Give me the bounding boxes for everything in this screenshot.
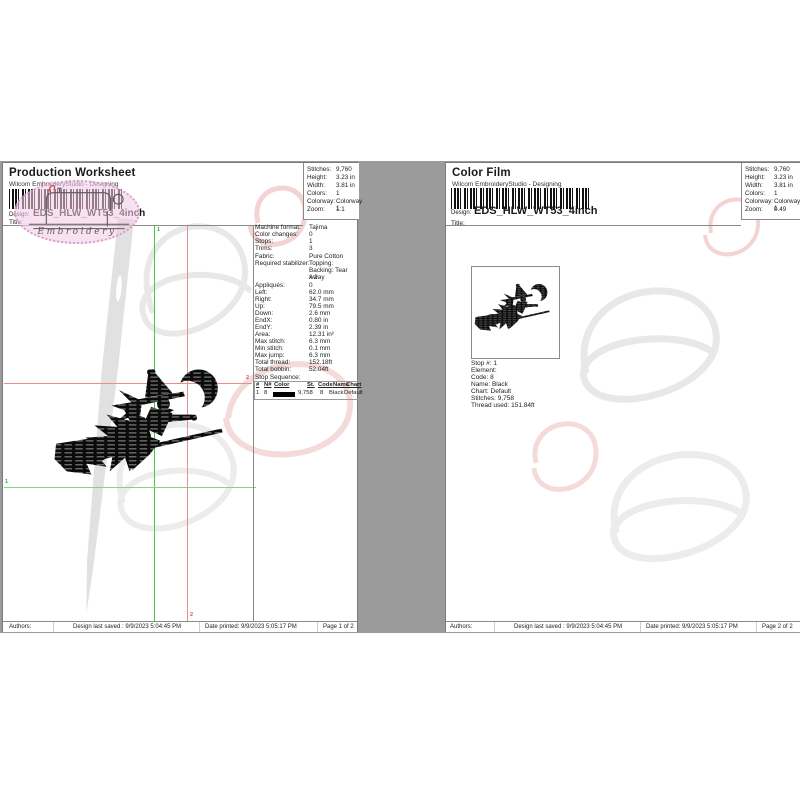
page-title: Color Film xyxy=(452,167,511,179)
detail-value: 1 xyxy=(309,238,313,245)
stat-value: 3.81 in xyxy=(336,182,355,189)
detail-label: Area: xyxy=(255,331,270,338)
footer-saved: Design last saved : 9/9/2023 5:04:45 PM xyxy=(514,624,622,630)
detail-value: 6.3 mm xyxy=(309,352,330,359)
col-header: Color xyxy=(274,382,289,388)
detail-value: 62.0 mm xyxy=(309,289,334,296)
stat-value: 1:1 xyxy=(336,206,345,213)
cell-stitches: 9,758 xyxy=(298,390,313,396)
stop-detail-line: Name: Black xyxy=(471,381,508,388)
footer-saved: Design last saved : 9/9/2023 5:04:45 PM xyxy=(73,624,181,630)
col-header: Chart xyxy=(346,382,361,388)
detail-value: 152.18ft xyxy=(309,359,332,366)
witch-embroidery-design xyxy=(53,367,237,493)
stat-value: 0.49 xyxy=(774,206,786,213)
header-divider xyxy=(446,225,741,226)
app-subtitle: Wilcom EmbroideryStudio - Designing xyxy=(452,181,561,188)
stat-label: Height: xyxy=(745,174,765,181)
detail-value: 2.39 in xyxy=(309,324,328,331)
detail-label: Required stabilizer: xyxy=(255,260,310,267)
detail-label: Up: xyxy=(255,303,265,310)
detail-label: Machine format: xyxy=(255,224,301,231)
detail-value: 0.1 mm xyxy=(309,345,330,352)
stat-label: Colorway: xyxy=(307,198,335,205)
design-name: EDS_HLW_WT53_4inch xyxy=(474,205,597,217)
detail-value: 0 xyxy=(309,231,313,238)
footer-authors: Authors: xyxy=(9,624,31,630)
page-title: Production Worksheet xyxy=(9,167,135,179)
detail-value: 12.31 in² xyxy=(309,331,334,338)
col-header: Code xyxy=(318,382,333,388)
page-footer: Authors: Design last saved : 9/9/2023 5:… xyxy=(3,621,357,632)
stat-label: Width: xyxy=(307,182,325,189)
detail-value: 0.80 in xyxy=(309,317,328,324)
stop-detail-line: Chart: Default xyxy=(471,388,511,395)
stat-label: Stitches: xyxy=(307,166,331,173)
detail-value: 79.5 mm xyxy=(309,303,334,310)
detail-label: Trims: xyxy=(255,245,273,252)
stop-detail-line: Thread used: 151.84ft xyxy=(471,402,535,409)
cell-needle: 8 xyxy=(264,390,267,396)
detail-label: Down: xyxy=(255,310,273,317)
detail-label: Color changes: xyxy=(255,231,298,238)
detail-value: Topping: xyxy=(309,260,333,267)
stat-label: Colorway: xyxy=(745,198,773,205)
stat-value: 3.23 in xyxy=(774,174,793,181)
brand-stamp: Embroidery xyxy=(14,180,140,244)
design-stats-box: Stitches:9,760 Height:3.23 in Width:3.81… xyxy=(303,163,359,220)
stat-value: 3.81 in xyxy=(774,182,793,189)
cell-name: Black xyxy=(329,390,343,396)
stat-label: Zoom: xyxy=(307,206,325,213)
stop-detail-line: Stop #: 1 xyxy=(471,360,497,367)
detail-label: Stops: xyxy=(255,238,273,245)
marker-label-start-top: 1 xyxy=(157,227,160,233)
detail-label: Fabric: xyxy=(255,253,275,260)
design-stats-box: Stitches:9,760 Height:3.23 in Width:3.81… xyxy=(741,163,800,220)
marker-label-start-left: 1 xyxy=(5,479,8,485)
cell-code: 8 xyxy=(320,390,323,396)
col-header: St. xyxy=(307,382,315,388)
sewing-machine-art xyxy=(18,185,140,233)
detail-label: Total thread: xyxy=(255,359,290,366)
stop-sequence-heading: Stop Sequence: xyxy=(255,374,300,381)
col-header: N# xyxy=(264,382,272,388)
stat-value: 1 xyxy=(336,190,340,197)
detail-label: Left: xyxy=(255,289,267,296)
detail-label: Total bobbin: xyxy=(255,366,291,373)
detail-label: EndY: xyxy=(255,324,272,331)
cell-number: 1 xyxy=(256,390,259,396)
stat-value: 1 xyxy=(774,190,778,197)
stop-sequence-table: # N# Color St. Code Name Chart 1 8 9,758… xyxy=(254,381,360,400)
page-production-worksheet: 1 1 2 2 Production Worksheet Wilcom Embr… xyxy=(2,162,358,632)
color-swatch xyxy=(273,392,295,398)
stat-value: 3.23 in xyxy=(336,174,355,181)
page-color-film: Color Film Wilcom EmbroideryStudio - Des… xyxy=(445,162,800,632)
detail-value: Tajima xyxy=(309,224,327,231)
stat-value: 9,760 xyxy=(774,166,790,173)
detail-label: EndX: xyxy=(255,317,272,324)
stat-label: Colors: xyxy=(307,190,327,197)
detail-label: Right: xyxy=(255,296,272,303)
detail-value: 52.04ft xyxy=(309,366,329,373)
stat-label: Stitches: xyxy=(745,166,769,173)
detail-label: Max stitch: xyxy=(255,338,286,345)
cell-chart: Default xyxy=(344,390,363,396)
stat-label: Zoom: xyxy=(745,206,763,213)
detail-value: 3 xyxy=(309,245,313,252)
stat-label: Height: xyxy=(307,174,327,181)
stop-detail-line: Element: xyxy=(471,367,497,374)
footer-printed: Date printed: 9/9/2023 5:05:17 PM xyxy=(205,624,297,630)
marker-label-end-right: 2 xyxy=(246,375,249,381)
color-film-thumbnail-box xyxy=(471,266,560,359)
stat-value: 9,760 xyxy=(336,166,352,173)
detail-value: 6.3 mm xyxy=(309,338,330,345)
page-footer: Authors: Design last saved : 9/9/2023 5:… xyxy=(446,621,800,632)
details-pane-divider xyxy=(253,225,254,621)
stamp-brand-text: Embroidery xyxy=(16,227,138,237)
marker-label-end-bottom: 2 xyxy=(190,612,193,618)
detail-value: Pure Cotton xyxy=(309,253,343,260)
screenshot-canvas: 1 1 2 2 Production Worksheet Wilcom Embr… xyxy=(0,0,800,800)
stop-detail-line: Stitches: 9,758 xyxy=(471,395,514,402)
detail-value: x 2 xyxy=(309,274,318,281)
design-label: Design: xyxy=(451,210,471,216)
footer-printed: Date printed: 9/9/2023 5:05:17 PM xyxy=(646,624,738,630)
footer-authors: Authors: xyxy=(450,624,472,630)
detail-label: Appliqués: xyxy=(255,282,285,289)
stat-label: Colors: xyxy=(745,190,765,197)
witch-thumbnail xyxy=(474,283,556,339)
footer-page-number: Page 2 of 2 xyxy=(762,624,793,630)
stop-detail-line: Code: 8 xyxy=(471,374,494,381)
detail-value: 34.7 mm xyxy=(309,296,334,303)
stat-label: Width: xyxy=(745,182,763,189)
footer-page-number: Page 1 of 2 xyxy=(323,624,354,630)
detail-value: 2.6 mm xyxy=(309,310,330,317)
col-header: # xyxy=(256,382,259,388)
detail-label: Max jump: xyxy=(255,352,284,359)
detail-value: 0 xyxy=(309,282,313,289)
detail-label: Min stitch: xyxy=(255,345,284,352)
